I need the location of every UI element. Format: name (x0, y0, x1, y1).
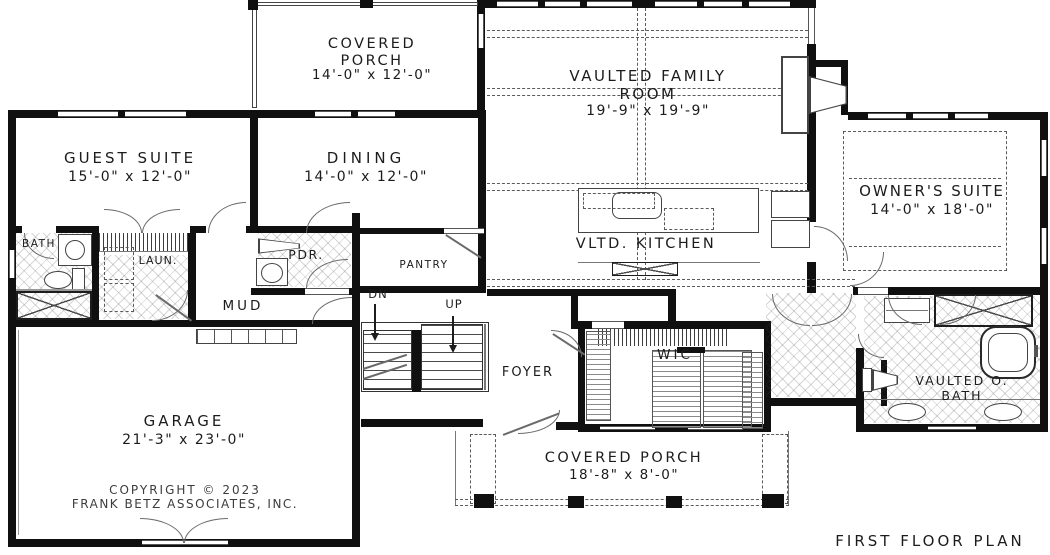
vault-line (487, 37, 808, 38)
vault-line (487, 183, 808, 184)
dryer (104, 283, 134, 312)
porch-edge (455, 431, 456, 505)
porch-roofline (455, 505, 789, 506)
room-label-owners-bath: VAULTED O. BATH (911, 374, 1013, 404)
wall (8, 320, 354, 327)
window (600, 426, 655, 430)
sink (65, 240, 85, 260)
closet-shelves (586, 331, 611, 421)
window (1041, 228, 1047, 264)
room-dims-covered-porch-bottom: 18'-8" x 8'-0" (569, 468, 679, 484)
tray-ceiling-line (849, 246, 1001, 247)
room-dims-guest-suite: 15'-0" x 12'-0" (68, 169, 192, 186)
up-arrow-head (449, 345, 457, 353)
room-dims-dining: 14'-0" x 12'-0" (304, 169, 428, 186)
refrigerator (771, 191, 810, 218)
wall (352, 293, 360, 322)
wall (478, 110, 486, 293)
wall-oven (771, 220, 810, 248)
chimney (781, 56, 809, 134)
vault-line (487, 30, 808, 31)
room-label-covered-porch-bottom: COVERED PORCH (545, 450, 703, 467)
tub-basin (988, 333, 1028, 372)
room-label-wic: WIC (657, 348, 693, 364)
door-arc (184, 518, 228, 543)
wall (668, 289, 676, 329)
closet-shelves (742, 352, 763, 429)
tray-ceiling-line (849, 178, 1001, 179)
vault-line (487, 286, 855, 287)
wall (8, 110, 16, 326)
room-dims-family-room: 19'-9" x 19'-9" (586, 103, 710, 120)
porch-roofline (455, 499, 789, 500)
copyright-line2: FRANK BETZ ASSOCIATES, INC. (72, 497, 298, 511)
door-leaf (446, 234, 482, 258)
door-arc (104, 209, 142, 233)
dn-arrow-head (371, 333, 379, 341)
room-label-pantry: PANTRY (399, 259, 448, 271)
toilet (261, 263, 283, 283)
toilet-tank (72, 268, 85, 290)
door-opening (305, 288, 349, 295)
stair-divider-wall (412, 330, 421, 392)
door-opening (444, 228, 484, 234)
wall (8, 326, 16, 547)
mud-bench (196, 329, 297, 344)
wall (352, 322, 360, 547)
window (808, 8, 815, 44)
toilet (44, 271, 72, 289)
wall (766, 398, 864, 406)
door-opening (592, 321, 624, 329)
room-dims-owners-suite: 14'-0" x 18'-0" (870, 202, 994, 219)
toilet-tank (862, 368, 872, 392)
window-post (742, 0, 749, 8)
porch-post (474, 494, 494, 508)
door-arc (208, 202, 246, 233)
wall (246, 226, 256, 233)
island-overhang (664, 208, 714, 230)
wall (807, 0, 816, 8)
room-label-guest-suite: GUEST SUITE (64, 150, 196, 168)
room-label-garage: GARAGE (144, 413, 225, 431)
room-label-family-room: VAULTED FAMILY ROOM (563, 68, 733, 103)
door-arc (140, 518, 184, 543)
wall (92, 226, 99, 322)
shower (16, 291, 92, 320)
wall (361, 419, 483, 427)
room-dims-garage: 21'-3" x 23'-0" (122, 432, 246, 449)
wall (190, 226, 206, 233)
window-post (697, 0, 704, 8)
tray-ceiling (843, 131, 1007, 271)
washer (104, 247, 134, 280)
floor-plan: COVERED PORCH 14'-0" x 12'-0" VAULTED FA… (0, 0, 1050, 555)
wall (56, 226, 92, 233)
stair-rail (484, 324, 486, 390)
stairs-up-label: UP (445, 298, 462, 312)
window (478, 14, 484, 48)
porch-post (666, 496, 682, 508)
door-arc (518, 410, 560, 434)
door-arc (850, 252, 884, 286)
wall (250, 110, 258, 226)
porch-post (762, 494, 784, 508)
porch-edge (788, 431, 789, 505)
sink (984, 403, 1022, 421)
window-post (906, 112, 913, 120)
door-arc (312, 297, 352, 324)
range (612, 262, 678, 276)
door-arc (306, 202, 350, 233)
room-dims-covered-porch-top: 14'-0" x 12'-0" (312, 68, 432, 84)
island-overhang (583, 193, 655, 209)
wall (571, 296, 578, 329)
up-arrow-line (452, 316, 454, 346)
wall (807, 262, 816, 293)
window-post (580, 0, 587, 8)
room-label-laundry: LAUN. (139, 255, 178, 268)
wall (1040, 112, 1048, 292)
window-post (118, 110, 125, 118)
wall (487, 289, 671, 296)
room-label-dining: DINING (327, 150, 405, 168)
plan-title: FIRST FLOOR PLAN (835, 533, 1024, 551)
room-label-owners-suite: OWNER'S SUITE (859, 183, 1005, 201)
room-label-foyer: FOYER (502, 365, 554, 380)
window (655, 1, 790, 7)
porch-post (248, 0, 258, 10)
wall (1040, 287, 1048, 432)
window-post (538, 0, 545, 8)
window-post (351, 110, 358, 118)
sink (888, 403, 926, 421)
window (497, 1, 632, 7)
dn-arrow-line (374, 304, 376, 334)
stairs-dn-label: DN (368, 288, 387, 302)
room-label-kitchen: VLTD. KITCHEN (576, 236, 717, 253)
wall (188, 233, 196, 322)
copyright-line1: COPYRIGHT © 2023 (109, 483, 261, 497)
porch-screen-wall (252, 2, 257, 108)
room-label-covered-porch-top: COVERED PORCH (311, 36, 433, 70)
closet-hanging-rod (598, 329, 730, 346)
window-post (948, 112, 955, 120)
room-label-bath: BATH (22, 238, 56, 250)
window (928, 426, 976, 430)
wall (578, 329, 585, 424)
garage-wall-inner-line (18, 330, 19, 535)
porch-post (360, 0, 373, 8)
wall (8, 226, 22, 233)
room-label-powder: PDR. (288, 248, 323, 263)
window (868, 113, 988, 119)
door-arc (142, 209, 180, 233)
room-label-mud: MUD (223, 299, 264, 315)
wall (352, 213, 360, 293)
door-opening (858, 287, 888, 295)
window (9, 250, 15, 278)
vault-line (487, 279, 855, 280)
porch-post (568, 496, 584, 508)
window (1041, 140, 1047, 176)
tub-faucet (1034, 345, 1038, 357)
